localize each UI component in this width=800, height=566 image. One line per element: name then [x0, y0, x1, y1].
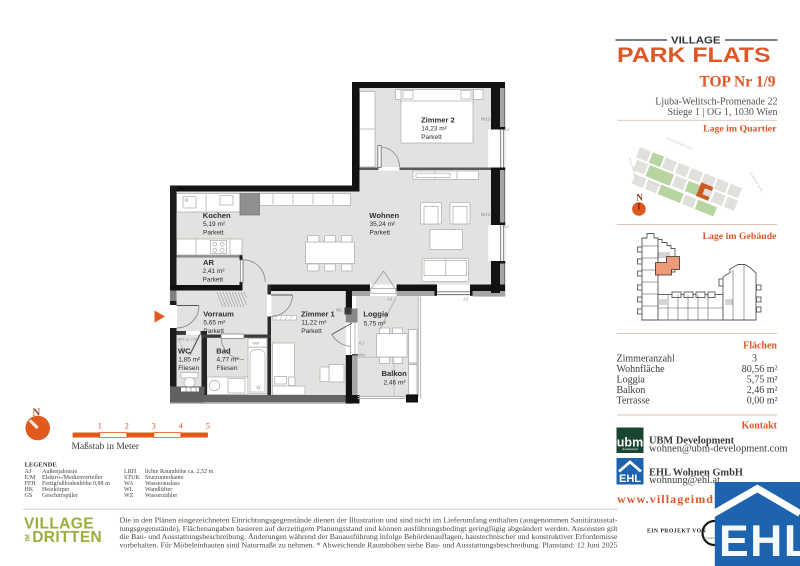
svg-text:LRH ca. 2,52: LRH ca. 2,52 [178, 338, 198, 342]
svg-text:2: 2 [125, 421, 129, 431]
svg-text:Lage im Quartier: Lage im Quartier [703, 124, 777, 135]
svg-text:Parkett: Parkett [203, 229, 224, 236]
svg-text:Sturzunterkante: Sturzunterkante [145, 475, 184, 481]
svg-text:Kochen: Kochen [203, 211, 231, 220]
svg-text:GS: GS [25, 493, 33, 499]
svg-text:STUK: STUK [124, 475, 141, 481]
svg-text:AJ: AJ [504, 127, 509, 132]
svg-text:Wohnfläche: Wohnfläche [617, 364, 666, 375]
svg-text:Elektro-/Medienverteiler: Elektro-/Medienverteiler [42, 475, 103, 481]
svg-text:AJ: AJ [25, 469, 32, 475]
svg-text:Parkett: Parkett [203, 328, 224, 335]
svg-text:EIN PROJEKT VON: EIN PROJEKT VON [647, 529, 707, 535]
svg-text:Zimmer 2: Zimmer 2 [421, 116, 455, 125]
svg-text:Parkett: Parkett [370, 229, 391, 236]
svg-text:WA: WA [359, 353, 366, 358]
svg-text:Fliesen: Fliesen [217, 365, 238, 372]
svg-text:5,65 m²: 5,65 m² [203, 320, 226, 327]
svg-text:3: 3 [752, 354, 757, 365]
svg-text:Wasserzähler: Wasserzähler [145, 493, 177, 499]
svg-text:Loggia: Loggia [617, 374, 646, 385]
svg-text:Außenjalousie: Außenjalousie [42, 468, 77, 475]
svg-text:35,24 m²: 35,24 m² [370, 221, 396, 228]
svg-text:Geschirrspüler: Geschirrspüler [42, 493, 78, 499]
svg-text:WA: WA [124, 481, 134, 487]
svg-text:3: 3 [152, 421, 156, 431]
svg-text:Stiege 1 | OG 1, 1030 Wien: Stiege 1 | OG 1, 1030 Wien [667, 107, 777, 118]
svg-text:W13: W13 [481, 117, 491, 122]
svg-text:wohnung@ehl.at: wohnung@ehl.at [649, 475, 720, 486]
svg-text:Ljuba-Welitsch-Promenade 22: Ljuba-Welitsch-Promenade 22 [655, 96, 777, 107]
svg-text:Flächen: Flächen [743, 340, 777, 351]
svg-text:EHL: EHL [719, 517, 800, 566]
svg-text:lichte Raumhöhe ca. 2,52 m: lichte Raumhöhe ca. 2,52 m [145, 469, 214, 475]
svg-text:Terrasse: Terrasse [617, 395, 651, 406]
svg-text:Balkon: Balkon [382, 369, 408, 378]
svg-text:die Bau- und Ausstattungsbesch: die Bau- und Ausstattungsbeschreibung. Ä… [120, 534, 618, 541]
svg-text:Loggia: Loggia [363, 310, 389, 319]
svg-text:Parkett: Parkett [203, 277, 224, 284]
svg-text:vorbehalten. Für Möbeleinbaute: vorbehalten. Für Möbeleinbauten sind Nat… [120, 542, 619, 549]
svg-text:Balkon: Balkon [617, 385, 646, 396]
svg-text:development: development [622, 447, 638, 451]
svg-text:WL: WL [336, 308, 343, 313]
svg-text:AJ: AJ [387, 297, 392, 302]
svg-text:AJ: AJ [463, 297, 468, 302]
svg-text:WZ: WZ [124, 493, 134, 499]
svg-text:2,46 m²: 2,46 m² [747, 385, 778, 396]
svg-text:E/M: E/M [25, 475, 36, 481]
svg-text:Lage im Gebäude: Lage im Gebäude [702, 231, 777, 242]
svg-text:Vorraum: Vorraum [203, 309, 234, 318]
svg-text:Wandlüfter: Wandlüfter [145, 486, 172, 493]
svg-text:5,75 m²: 5,75 m² [747, 374, 778, 385]
svg-text:Wohnen: Wohnen [369, 211, 399, 220]
svg-text:DRITTEN: DRITTEN [32, 529, 102, 546]
svg-text:Zimmer 1: Zimmer 1 [301, 309, 336, 318]
svg-text:FFH: FFH [25, 481, 37, 487]
svg-text:Kontakt: Kontakt [741, 421, 777, 432]
svg-text:AJ: AJ [504, 224, 509, 229]
svg-text:HK: HK [25, 487, 34, 493]
svg-text:1: 1 [98, 421, 102, 431]
svg-text:5,75 m²: 5,75 m² [364, 321, 387, 328]
svg-text:5: 5 [206, 421, 210, 431]
svg-text:4: 4 [179, 421, 184, 431]
svg-text:2,41 m²: 2,41 m² [203, 268, 226, 275]
svg-text:5,19 m²: 5,19 m² [203, 221, 226, 228]
svg-text:Parkett: Parkett [301, 328, 322, 335]
svg-text:tungsgegenstände). Flächenanga: tungsgegenstände). Flächenangaben basier… [120, 526, 618, 533]
svg-text:Zimmeranzahl: Zimmeranzahl [617, 354, 676, 365]
svg-text:Die in den Plänen eingezeichne: Die in den Plänen eingezeichneten Einric… [120, 518, 619, 525]
svg-text:AJ: AJ [359, 341, 364, 346]
svg-text:W13: W13 [481, 212, 491, 217]
svg-text:80,56 m²: 80,56 m² [742, 364, 778, 375]
svg-text:VILLAGE IM: VILLAGE IM [702, 536, 716, 540]
svg-text:WM: WM [253, 341, 260, 345]
svg-text:Fertigfußbodenhöhe 0,88 m: Fertigfußbodenhöhe 0,88 m [42, 480, 110, 487]
svg-text:WC: WC [178, 346, 191, 355]
svg-text:2,46 m²: 2,46 m² [384, 380, 407, 387]
svg-text:1,85 m²: 1,85 m² [178, 357, 201, 364]
svg-text:LRH: LRH [124, 469, 137, 475]
svg-text:Fliesen: Fliesen [178, 365, 199, 372]
svg-text:Wasserauslass: Wasserauslass [145, 481, 180, 487]
svg-text:Maßstab in Meter: Maßstab in Meter [72, 441, 140, 452]
svg-text:0,00 m²: 0,00 m² [747, 395, 778, 406]
svg-text:Parkett: Parkett [421, 134, 442, 141]
svg-text:wohnen@ubm-development.com: wohnen@ubm-development.com [649, 443, 788, 454]
svg-text:4,77 m²: 4,77 m² [217, 357, 240, 364]
svg-text:EHL: EHL [619, 473, 641, 485]
svg-text:AR: AR [203, 258, 214, 267]
svg-text:N: N [636, 193, 643, 203]
svg-text:Heizkörper: Heizkörper [42, 487, 69, 493]
svg-text:11,22 m²: 11,22 m² [301, 320, 327, 327]
svg-text:IM: IM [24, 534, 31, 541]
svg-text:TOP Nr 1/9: TOP Nr 1/9 [699, 74, 775, 91]
svg-text:LEGENDE: LEGENDE [25, 462, 58, 469]
svg-text:14,23 m²: 14,23 m² [421, 126, 447, 133]
svg-text:Bad: Bad [216, 346, 231, 355]
svg-text:PARK FLATS: PARK FLATS [617, 43, 771, 67]
svg-text:WL: WL [124, 487, 134, 493]
